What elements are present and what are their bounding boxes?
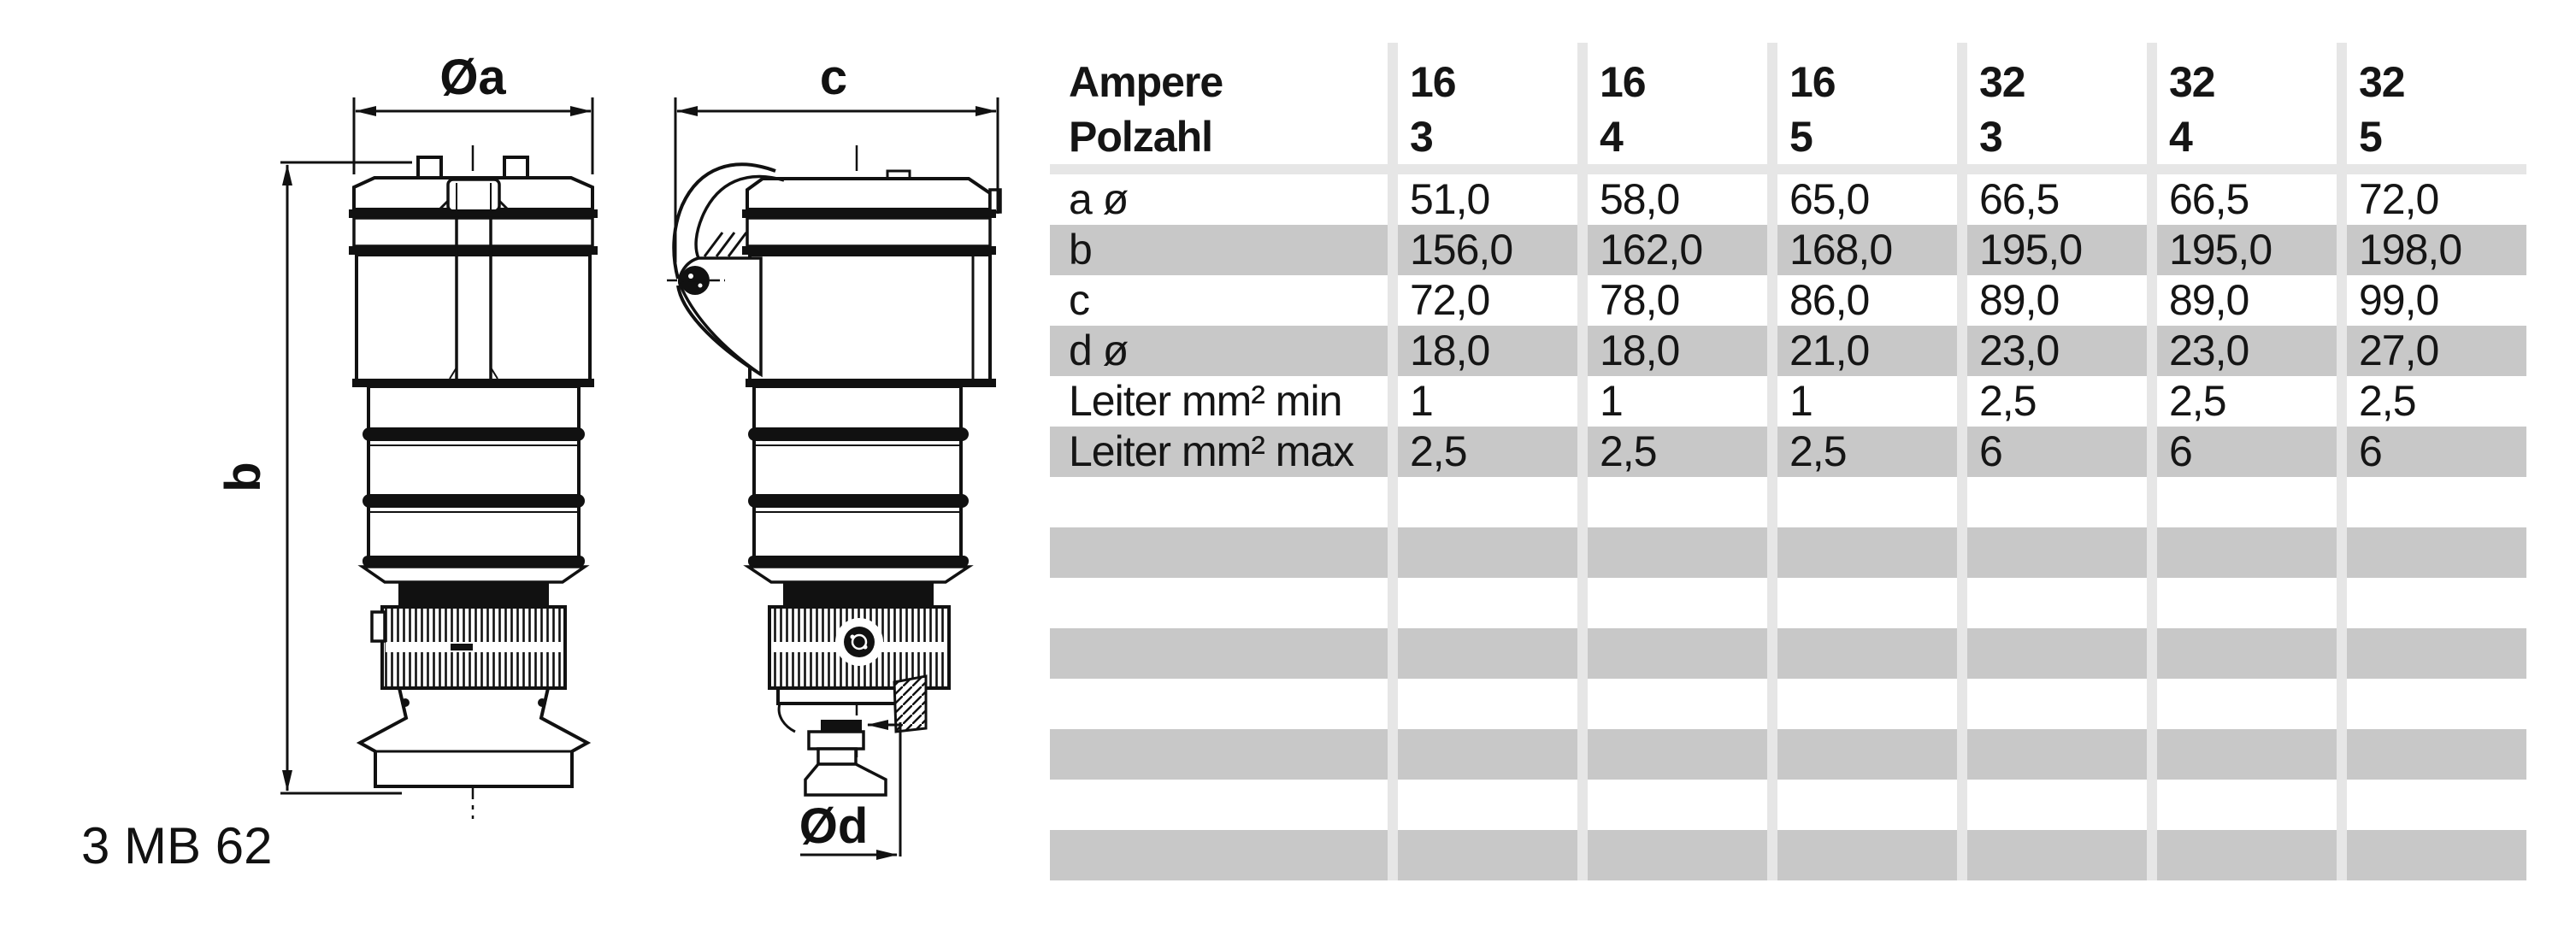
row-label: Leiter mm² min: [1050, 376, 1388, 427]
value-cell: 6: [2337, 427, 2526, 477]
side-view: c Ød: [667, 50, 1000, 857]
table-row: c 72,0 78,0 86,0 89,0 89,0 99,0: [1050, 275, 2526, 326]
sleeve: [754, 386, 961, 557]
dim-a-label: Øa: [439, 50, 506, 105]
value-cell: 89,0: [2147, 275, 2337, 326]
grip-ring: [748, 494, 969, 508]
table-empty-row: [1050, 628, 2526, 679]
header-col: 16 4: [1577, 43, 1767, 164]
col-ampere: 32: [2359, 55, 2526, 109]
value-cell: 72,0: [2337, 174, 2526, 225]
value-cell: 86,0: [1767, 275, 1957, 326]
col-polzahl: 3: [1410, 109, 1577, 164]
value-cell: 2,5: [1577, 427, 1767, 477]
value-cell: 6: [1957, 427, 2147, 477]
value-cell: 2,5: [2337, 376, 2526, 427]
figure-code: 3 MB 62: [81, 817, 272, 874]
table-empty-row: [1050, 780, 2526, 830]
grip-ring: [363, 427, 585, 441]
cable-outlet: [778, 676, 926, 795]
value-cell: 2,5: [1767, 427, 1957, 477]
header-col: 16 3: [1388, 43, 1577, 164]
value-cell: 27,0: [2337, 326, 2526, 376]
value-cell: 18,0: [1577, 326, 1767, 376]
collar: [747, 218, 990, 246]
value-cell: 1: [1577, 376, 1767, 427]
dim-d-label: Ød: [799, 798, 869, 854]
value-cell: 6: [2147, 427, 2337, 477]
dim-c-label: c: [820, 50, 847, 105]
gland-screw: [844, 627, 875, 657]
value-cell: 1: [1767, 376, 1957, 427]
cable-bell: [360, 688, 587, 786]
thread: [783, 582, 934, 607]
header-polzahl-label: Polzahl: [1069, 109, 1388, 164]
body: [357, 255, 590, 380]
thread: [398, 582, 549, 607]
technical-drawing: Øa b: [0, 0, 1060, 936]
table-empty-row: [1050, 578, 2526, 628]
table-row: Leiter mm² min 1 1 1 2,5 2,5 2,5: [1050, 376, 2526, 427]
row-label: Leiter mm² max: [1050, 427, 1388, 477]
col-polzahl: 4: [2169, 109, 2337, 164]
collar: [354, 218, 592, 246]
table-empty-row: [1050, 729, 2526, 780]
value-cell: 66,5: [1957, 174, 2147, 225]
value-cell: 51,0: [1388, 174, 1577, 225]
value-cell: 195,0: [1957, 225, 2147, 275]
col-polzahl: 5: [1789, 109, 1957, 164]
gland-tab: [372, 612, 385, 641]
table-empty-row: [1050, 527, 2526, 578]
value-cell: 2,5: [1388, 427, 1577, 477]
col-ampere: 16: [1789, 55, 1957, 109]
flange: [363, 567, 585, 582]
spec-table: Ampere Polzahl 16 3 16 4 16 5 32 3 32 4: [1050, 43, 2526, 880]
table-row: d ø 18,0 18,0 21,0 23,0 23,0 27,0: [1050, 326, 2526, 376]
value-cell: 2,5: [2147, 376, 2337, 427]
value-cell: 156,0: [1388, 225, 1577, 275]
value-cell: 21,0: [1767, 326, 1957, 376]
table-header-row: Ampere Polzahl 16 3 16 4 16 5 32 3 32 4: [1050, 43, 2526, 164]
header-col: 16 5: [1767, 43, 1957, 164]
col-ampere: 16: [1600, 55, 1767, 109]
column-divider: [2147, 43, 2157, 880]
header-label-cell: Ampere Polzahl: [1050, 43, 1388, 164]
lid: [747, 179, 990, 209]
column-divider: [1767, 43, 1777, 880]
grip-ring: [363, 494, 585, 508]
value-cell: 78,0: [1577, 275, 1767, 326]
table-row: a ø 51,0 58,0 65,0 66,5 66,5 72,0: [1050, 174, 2526, 225]
value-cell: 65,0: [1767, 174, 1957, 225]
column-divider: [1577, 43, 1588, 880]
column-divider: [2337, 43, 2347, 880]
row-label: c: [1050, 275, 1388, 326]
value-cell: 23,0: [2147, 326, 2337, 376]
header-ampere-label: Ampere: [1069, 55, 1388, 109]
row-label: b: [1050, 225, 1388, 275]
value-cell: 18,0: [1388, 326, 1577, 376]
value-cell: 72,0: [1388, 275, 1577, 326]
row-label: a ø: [1050, 174, 1388, 225]
header-col: 32 4: [2147, 43, 2337, 164]
table-empty-row: [1050, 830, 2526, 880]
sleeve: [368, 386, 579, 557]
header-col: 32 3: [1957, 43, 2147, 164]
value-cell: 66,5: [2147, 174, 2337, 225]
table-empty-row: [1050, 477, 2526, 527]
row-label: d ø: [1050, 326, 1388, 376]
column-divider: [1388, 43, 1398, 880]
value-cell: 58,0: [1577, 174, 1767, 225]
table-row: b 156,0 162,0 168,0 195,0 195,0 198,0: [1050, 225, 2526, 275]
value-cell: 2,5: [1957, 376, 2147, 427]
header-col: 32 5: [2337, 43, 2526, 164]
header-separator: [1050, 164, 2526, 174]
table-empty-row: [1050, 679, 2526, 729]
value-cell: 198,0: [2337, 225, 2526, 275]
col-ampere: 16: [1410, 55, 1577, 109]
flange: [748, 567, 969, 582]
value-cell: 162,0: [1577, 225, 1767, 275]
datasheet-page: Øa b: [0, 0, 2576, 936]
grip-ring: [748, 427, 969, 441]
value-cell: 99,0: [2337, 275, 2526, 326]
front-view: Øa b: [215, 50, 598, 819]
value-cell: 23,0: [1957, 326, 2147, 376]
value-cell: 89,0: [1957, 275, 2147, 326]
col-polzahl: 3: [1979, 109, 2147, 164]
value-cell: 168,0: [1767, 225, 1957, 275]
col-ampere: 32: [1979, 55, 2147, 109]
col-polzahl: 4: [1600, 109, 1767, 164]
table-row: Leiter mm² max 2,5 2,5 2,5 6 6 6: [1050, 427, 2526, 477]
col-ampere: 32: [2169, 55, 2337, 109]
value-cell: 1: [1388, 376, 1577, 427]
dim-b-label: b: [215, 462, 271, 492]
body: [750, 255, 990, 380]
column-divider: [1957, 43, 1967, 880]
value-cell: 195,0: [2147, 225, 2337, 275]
col-polzahl: 5: [2359, 109, 2526, 164]
